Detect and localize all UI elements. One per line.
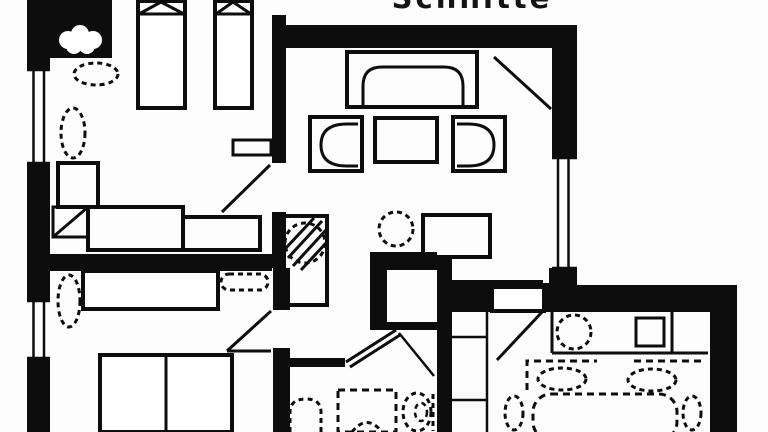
double-bed — [100, 355, 232, 432]
bedroom-door-swing-bottom-left — [227, 311, 271, 351]
potted-plant-3 — [58, 275, 80, 327]
sofa — [347, 52, 477, 107]
washbasin — [290, 399, 321, 432]
floor-plan-page: Schnitte — [0, 0, 768, 432]
kitchen-counter — [552, 312, 708, 353]
wall-shelf — [233, 140, 271, 155]
rug-outline — [527, 361, 704, 390]
nightstand — [58, 163, 98, 207]
single-bed-1 — [138, 1, 185, 108]
dining-chair-3 — [505, 396, 523, 430]
potted-plant-2 — [61, 108, 85, 158]
kitchen-sink — [557, 315, 591, 349]
window-left-upper — [27, 70, 50, 163]
dining-chair-2 — [628, 369, 676, 391]
sideboard — [183, 217, 260, 250]
single-bed-2 — [215, 1, 252, 108]
kitchen-door — [492, 287, 544, 360]
floor-plan-drawing: Schnitte — [0, 0, 768, 432]
dining-chair-1 — [538, 368, 586, 390]
tv-cabinet — [423, 215, 490, 257]
potted-plant-4 — [379, 212, 413, 246]
shower — [338, 390, 396, 432]
plan-title: Schnitte — [392, 0, 553, 15]
window-left-lower — [27, 301, 50, 358]
desk — [88, 207, 183, 250]
window-right — [552, 158, 577, 268]
potted-plant-1 — [74, 63, 118, 85]
dining-table — [533, 394, 677, 432]
armchair-right — [453, 117, 505, 171]
entrance-door-swing — [494, 57, 551, 109]
bedroom-door-swing-top-left — [222, 165, 270, 212]
coffee-table — [375, 118, 437, 162]
single-bed-3 — [83, 271, 268, 309]
shelf-niche — [452, 312, 487, 432]
bathroom-door — [346, 330, 434, 376]
armchair-left — [310, 117, 362, 171]
cooktop — [636, 318, 664, 346]
chair — [53, 207, 88, 237]
dining-chair-4 — [683, 396, 701, 430]
toilet — [403, 393, 433, 431]
